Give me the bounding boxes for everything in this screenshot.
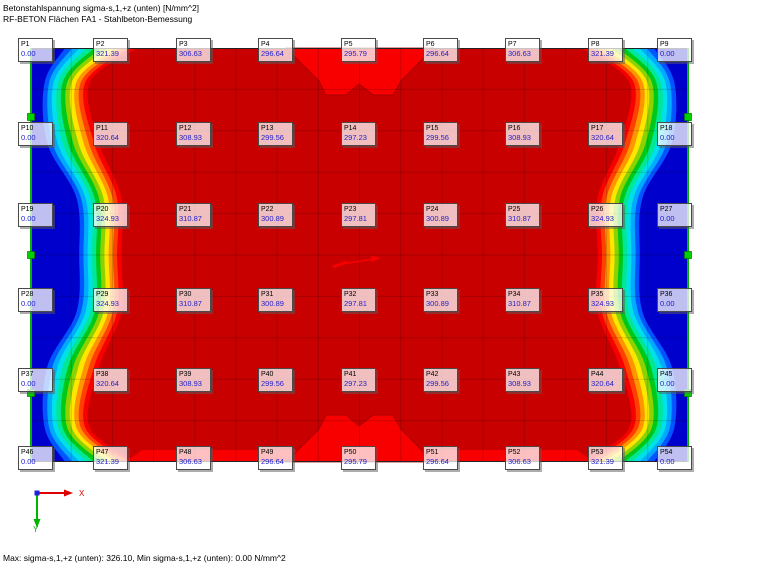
point-name: P42 xyxy=(426,370,454,379)
point-label: P35324.93 xyxy=(588,288,623,312)
module-subtitle: RF-BETON Flächen FA1 - Stahlbeton-Bemess… xyxy=(3,14,199,25)
point-name: P51 xyxy=(426,448,454,457)
point-label: P44320.64 xyxy=(588,368,623,392)
point-label: P90.00 xyxy=(657,38,692,62)
x-axis-label: X xyxy=(79,489,85,498)
point-label: P39308.93 xyxy=(176,368,211,392)
point-value: 300.89 xyxy=(426,214,454,224)
point-label: P43308.93 xyxy=(505,368,540,392)
point-label: P8321.39 xyxy=(588,38,623,62)
point-label: P23297.81 xyxy=(341,203,376,227)
point-name: P7 xyxy=(508,40,536,49)
point-label: P13299.56 xyxy=(258,122,293,146)
point-label: P50295.79 xyxy=(341,446,376,470)
axis-triad-icon: X Y xyxy=(28,483,103,533)
point-name: P38 xyxy=(96,370,124,379)
point-value: 296.64 xyxy=(261,457,289,467)
point-value: 299.56 xyxy=(426,379,454,389)
point-value: 296.64 xyxy=(426,457,454,467)
point-value: 299.56 xyxy=(261,133,289,143)
point-label: P3306.63 xyxy=(176,38,211,62)
point-label: P450.00 xyxy=(657,368,692,392)
point-name: P45 xyxy=(660,370,688,379)
point-label: P49296.64 xyxy=(258,446,293,470)
point-label: P20324.93 xyxy=(93,203,128,227)
point-label: P52306.63 xyxy=(505,446,540,470)
point-name: P22 xyxy=(261,205,289,214)
point-value: 300.89 xyxy=(261,299,289,309)
y-axis-label: Y xyxy=(33,525,39,533)
point-label: P26324.93 xyxy=(588,203,623,227)
point-value: 306.63 xyxy=(179,457,207,467)
point-name: P18 xyxy=(660,124,688,133)
point-label: P42299.56 xyxy=(423,368,458,392)
edge-node-marker xyxy=(28,252,35,259)
point-label: P100.00 xyxy=(18,122,53,146)
point-name: P14 xyxy=(344,124,372,133)
point-label: P10.00 xyxy=(18,38,53,62)
point-value: 308.93 xyxy=(179,379,207,389)
point-value: 321.39 xyxy=(591,457,619,467)
point-name: P46 xyxy=(21,448,49,457)
point-name: P29 xyxy=(96,290,124,299)
point-name: P52 xyxy=(508,448,536,457)
point-label: P5295.79 xyxy=(341,38,376,62)
point-value: 320.64 xyxy=(96,379,124,389)
point-name: P12 xyxy=(179,124,207,133)
point-name: P16 xyxy=(508,124,536,133)
point-value: 321.39 xyxy=(96,49,124,59)
status-minmax-line: Max: sigma-s,1,+z (unten): 326.10, Min s… xyxy=(3,553,286,563)
point-name: P27 xyxy=(660,205,688,214)
point-value: 0.00 xyxy=(660,214,688,224)
point-value: 0.00 xyxy=(660,299,688,309)
point-label: P41297.23 xyxy=(341,368,376,392)
point-label: P31300.89 xyxy=(258,288,293,312)
point-name: P50 xyxy=(344,448,372,457)
edge-node-marker xyxy=(28,114,35,121)
point-label: P24300.89 xyxy=(423,203,458,227)
point-label: P53321.39 xyxy=(588,446,623,470)
point-value: 308.93 xyxy=(508,133,536,143)
point-value: 320.64 xyxy=(591,133,619,143)
point-name: P33 xyxy=(426,290,454,299)
point-name: P44 xyxy=(591,370,619,379)
point-name: P15 xyxy=(426,124,454,133)
point-label: P4296.64 xyxy=(258,38,293,62)
point-value: 324.93 xyxy=(96,214,124,224)
point-name: P3 xyxy=(179,40,207,49)
point-value: 0.00 xyxy=(21,49,49,59)
point-name: P32 xyxy=(344,290,372,299)
point-name: P35 xyxy=(591,290,619,299)
point-name: P19 xyxy=(21,205,49,214)
point-label: P47321.39 xyxy=(93,446,128,470)
point-value: 297.23 xyxy=(344,379,372,389)
point-label: P25310.87 xyxy=(505,203,540,227)
point-label: P40299.56 xyxy=(258,368,293,392)
point-name: P48 xyxy=(179,448,207,457)
point-name: P10 xyxy=(21,124,49,133)
point-name: P17 xyxy=(591,124,619,133)
point-label: P14297.23 xyxy=(341,122,376,146)
point-value: 0.00 xyxy=(660,133,688,143)
point-value: 306.63 xyxy=(508,457,536,467)
point-name: P4 xyxy=(261,40,289,49)
point-value: 306.63 xyxy=(508,49,536,59)
result-viewport: Betonstahlspannung sigma-s,1,+z (unten) … xyxy=(0,0,760,570)
point-name: P34 xyxy=(508,290,536,299)
point-value: 300.89 xyxy=(261,214,289,224)
point-name: P37 xyxy=(21,370,49,379)
point-label: P11320.64 xyxy=(93,122,128,146)
point-value: 0.00 xyxy=(21,133,49,143)
point-label: P360.00 xyxy=(657,288,692,312)
point-label: P370.00 xyxy=(18,368,53,392)
point-name: P8 xyxy=(591,40,619,49)
point-label: P180.00 xyxy=(657,122,692,146)
point-value: 0.00 xyxy=(21,214,49,224)
point-name: P54 xyxy=(660,448,688,457)
point-name: P36 xyxy=(660,290,688,299)
point-value: 321.39 xyxy=(591,49,619,59)
edge-node-marker xyxy=(685,252,692,259)
point-label: P51296.64 xyxy=(423,446,458,470)
point-value: 324.93 xyxy=(591,214,619,224)
point-value: 310.87 xyxy=(179,299,207,309)
point-label: P270.00 xyxy=(657,203,692,227)
point-value: 321.39 xyxy=(96,457,124,467)
point-name: P47 xyxy=(96,448,124,457)
point-name: P9 xyxy=(660,40,688,49)
point-name: P43 xyxy=(508,370,536,379)
x-axis-arrowhead xyxy=(64,490,73,497)
point-label: P17320.64 xyxy=(588,122,623,146)
point-label: P7306.63 xyxy=(505,38,540,62)
point-label: P48306.63 xyxy=(176,446,211,470)
point-name: P2 xyxy=(96,40,124,49)
point-label: P16308.93 xyxy=(505,122,540,146)
point-name: P26 xyxy=(591,205,619,214)
result-title: Betonstahlspannung sigma-s,1,+z (unten) … xyxy=(3,3,199,14)
point-value: 324.93 xyxy=(96,299,124,309)
point-label: P21310.87 xyxy=(176,203,211,227)
point-name: P23 xyxy=(344,205,372,214)
point-label: P15299.56 xyxy=(423,122,458,146)
point-label: P460.00 xyxy=(18,446,53,470)
point-label: P33300.89 xyxy=(423,288,458,312)
point-label: P190.00 xyxy=(18,203,53,227)
point-value: 306.63 xyxy=(179,49,207,59)
point-label: P280.00 xyxy=(18,288,53,312)
point-value: 308.93 xyxy=(179,133,207,143)
fem-plot-area[interactable] xyxy=(30,48,689,462)
point-value: 310.87 xyxy=(179,214,207,224)
point-label: P30310.87 xyxy=(176,288,211,312)
point-value: 297.23 xyxy=(344,133,372,143)
point-value: 0.00 xyxy=(21,457,49,467)
point-name: P39 xyxy=(179,370,207,379)
point-name: P41 xyxy=(344,370,372,379)
point-label: P29324.93 xyxy=(93,288,128,312)
point-name: P21 xyxy=(179,205,207,214)
point-name: P25 xyxy=(508,205,536,214)
point-name: P13 xyxy=(261,124,289,133)
point-value: 0.00 xyxy=(660,457,688,467)
point-value: 299.56 xyxy=(261,379,289,389)
point-label: P12308.93 xyxy=(176,122,211,146)
point-value: 300.89 xyxy=(426,299,454,309)
point-label: P22300.89 xyxy=(258,203,293,227)
point-value: 296.64 xyxy=(426,49,454,59)
point-name: P11 xyxy=(96,124,124,133)
point-value: 0.00 xyxy=(660,49,688,59)
point-label: P6296.64 xyxy=(423,38,458,62)
point-value: 297.81 xyxy=(344,214,372,224)
point-name: P24 xyxy=(426,205,454,214)
point-label: P32297.81 xyxy=(341,288,376,312)
point-value: 310.87 xyxy=(508,299,536,309)
point-value: 297.81 xyxy=(344,299,372,309)
point-value: 320.64 xyxy=(591,379,619,389)
point-value: 308.93 xyxy=(508,379,536,389)
edge-node-marker xyxy=(685,114,692,121)
point-name: P53 xyxy=(591,448,619,457)
point-name: P5 xyxy=(344,40,372,49)
point-label: P38320.64 xyxy=(93,368,128,392)
point-label: P2321.39 xyxy=(93,38,128,62)
result-header: Betonstahlspannung sigma-s,1,+z (unten) … xyxy=(3,3,199,25)
point-name: P40 xyxy=(261,370,289,379)
point-value: 0.00 xyxy=(21,299,49,309)
origin-node-icon xyxy=(35,491,40,496)
point-name: P49 xyxy=(261,448,289,457)
point-value: 320.64 xyxy=(96,133,124,143)
point-name: P28 xyxy=(21,290,49,299)
point-value: 295.79 xyxy=(344,457,372,467)
point-value: 299.56 xyxy=(426,133,454,143)
point-name: P6 xyxy=(426,40,454,49)
point-label: P34310.87 xyxy=(505,288,540,312)
point-name: P30 xyxy=(179,290,207,299)
stress-contour-plot[interactable] xyxy=(30,48,689,462)
point-value: 324.93 xyxy=(591,299,619,309)
point-name: P1 xyxy=(21,40,49,49)
point-value: 310.87 xyxy=(508,214,536,224)
point-name: P31 xyxy=(261,290,289,299)
point-value: 0.00 xyxy=(660,379,688,389)
point-label: P540.00 xyxy=(657,446,692,470)
point-value: 296.64 xyxy=(261,49,289,59)
point-value: 295.79 xyxy=(344,49,372,59)
point-value: 0.00 xyxy=(21,379,49,389)
point-name: P20 xyxy=(96,205,124,214)
